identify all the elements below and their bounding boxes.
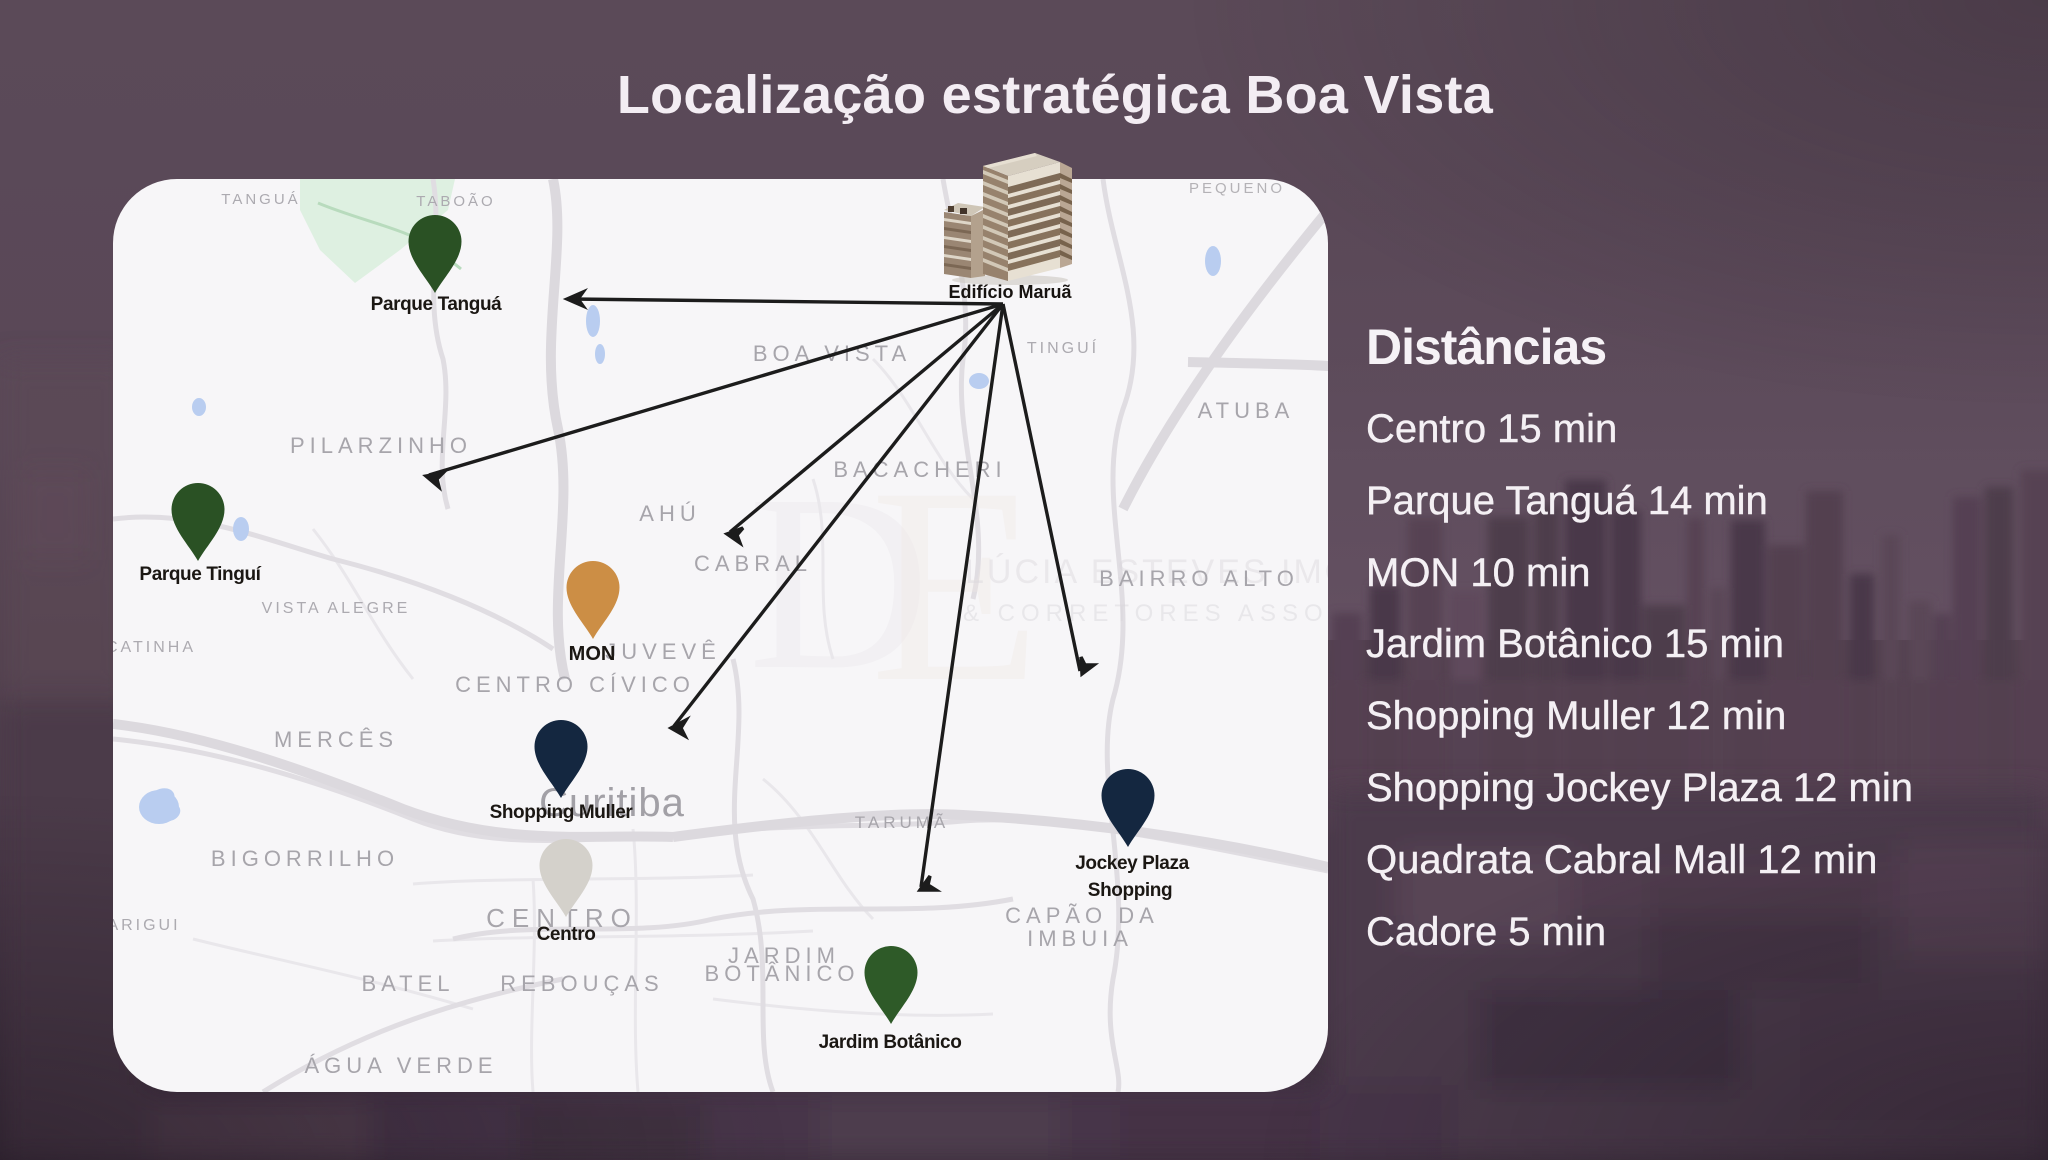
svg-text:Shopping: Shopping	[1088, 880, 1172, 901]
svg-text:ARIGUI: ARIGUI	[113, 917, 181, 934]
svg-text:TARUMÃ: TARUMÃ	[855, 813, 950, 832]
svg-text:AHÚ: AHÚ	[639, 501, 700, 526]
svg-text:CAPÃO DA: CAPÃO DA	[1005, 903, 1159, 928]
svg-text:BATEL: BATEL	[361, 971, 454, 996]
svg-text:& CORRETORES ASSOC: & CORRETORES ASSOC	[963, 600, 1328, 627]
svg-text:Parque Tanguá: Parque Tanguá	[371, 294, 502, 315]
svg-text:Shopping Muller: Shopping Muller	[490, 802, 634, 823]
svg-text:Centro: Centro	[537, 924, 596, 945]
svg-text:CATINHA: CATINHA	[113, 639, 196, 656]
svg-text:ATUBA: ATUBA	[1198, 398, 1295, 423]
svg-text:TABOÃO: TABOÃO	[416, 193, 495, 210]
svg-text:Jardim Botânico: Jardim Botânico	[819, 1032, 962, 1053]
svg-text:TANGUÁ: TANGUÁ	[221, 191, 300, 208]
svg-text:ÁGUA VERDE: ÁGUA VERDE	[304, 1053, 497, 1078]
svg-text:BAIRRO ALTO: BAIRRO ALTO	[1099, 566, 1299, 591]
svg-text:VISTA ALEGRE: VISTA ALEGRE	[262, 600, 411, 617]
svg-text:IMBUIA: IMBUIA	[1027, 926, 1133, 951]
svg-text:Jockey Plaza: Jockey Plaza	[1075, 853, 1189, 874]
svg-text:REBOUÇAS: REBOUÇAS	[500, 971, 663, 996]
svg-text:PILARZINHO: PILARZINHO	[290, 433, 472, 458]
svg-text:TINGUÍ: TINGUÍ	[1027, 338, 1099, 357]
svg-text:Parque Tinguí: Parque Tinguí	[139, 564, 261, 585]
svg-text:PEQUENO: PEQUENO	[1189, 180, 1285, 197]
svg-text:JUVEVÊ: JUVEVÊ	[605, 639, 721, 664]
svg-text:BOTÂNICO: BOTÂNICO	[705, 961, 860, 986]
svg-text:MERCÊS: MERCÊS	[274, 727, 398, 752]
svg-text:MON: MON	[569, 643, 616, 665]
svg-text:BIGORRILHO: BIGORRILHO	[211, 846, 399, 871]
svg-text:CENTRO CÍVICO: CENTRO CÍVICO	[455, 672, 695, 697]
